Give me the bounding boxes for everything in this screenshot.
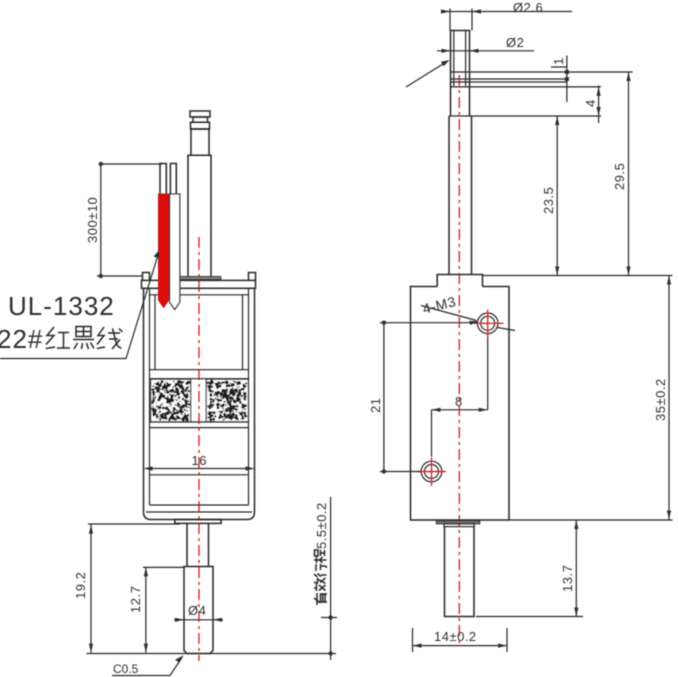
svg-text:16: 16 bbox=[192, 453, 207, 468]
svg-text:300±10: 300±10 bbox=[85, 197, 100, 243]
svg-text:23.5: 23.5 bbox=[541, 187, 556, 214]
svg-text:4: 4 bbox=[583, 99, 598, 107]
svg-text:13.7: 13.7 bbox=[560, 565, 575, 592]
svg-text:Ø2: Ø2 bbox=[506, 35, 524, 50]
svg-text:35±0.2: 35±0.2 bbox=[653, 378, 668, 421]
svg-text:8: 8 bbox=[455, 394, 463, 409]
svg-text:21: 21 bbox=[368, 398, 383, 413]
svg-text:19.2: 19.2 bbox=[73, 572, 88, 599]
svg-text:22#: 22# bbox=[0, 324, 43, 354]
svg-text:Ø4: Ø4 bbox=[188, 603, 206, 618]
svg-text:29.5: 29.5 bbox=[612, 163, 627, 190]
svg-text:UL-1332: UL-1332 bbox=[8, 291, 115, 321]
svg-text:Ø2.6: Ø2.6 bbox=[513, 0, 543, 15]
svg-text:C0.5: C0.5 bbox=[113, 662, 139, 676]
svg-text:12.7: 12.7 bbox=[128, 586, 143, 613]
svg-text:14±0.2: 14±0.2 bbox=[434, 629, 477, 644]
svg-text:5.5±0.2: 5.5±0.2 bbox=[314, 502, 329, 549]
svg-text:1: 1 bbox=[551, 57, 566, 65]
